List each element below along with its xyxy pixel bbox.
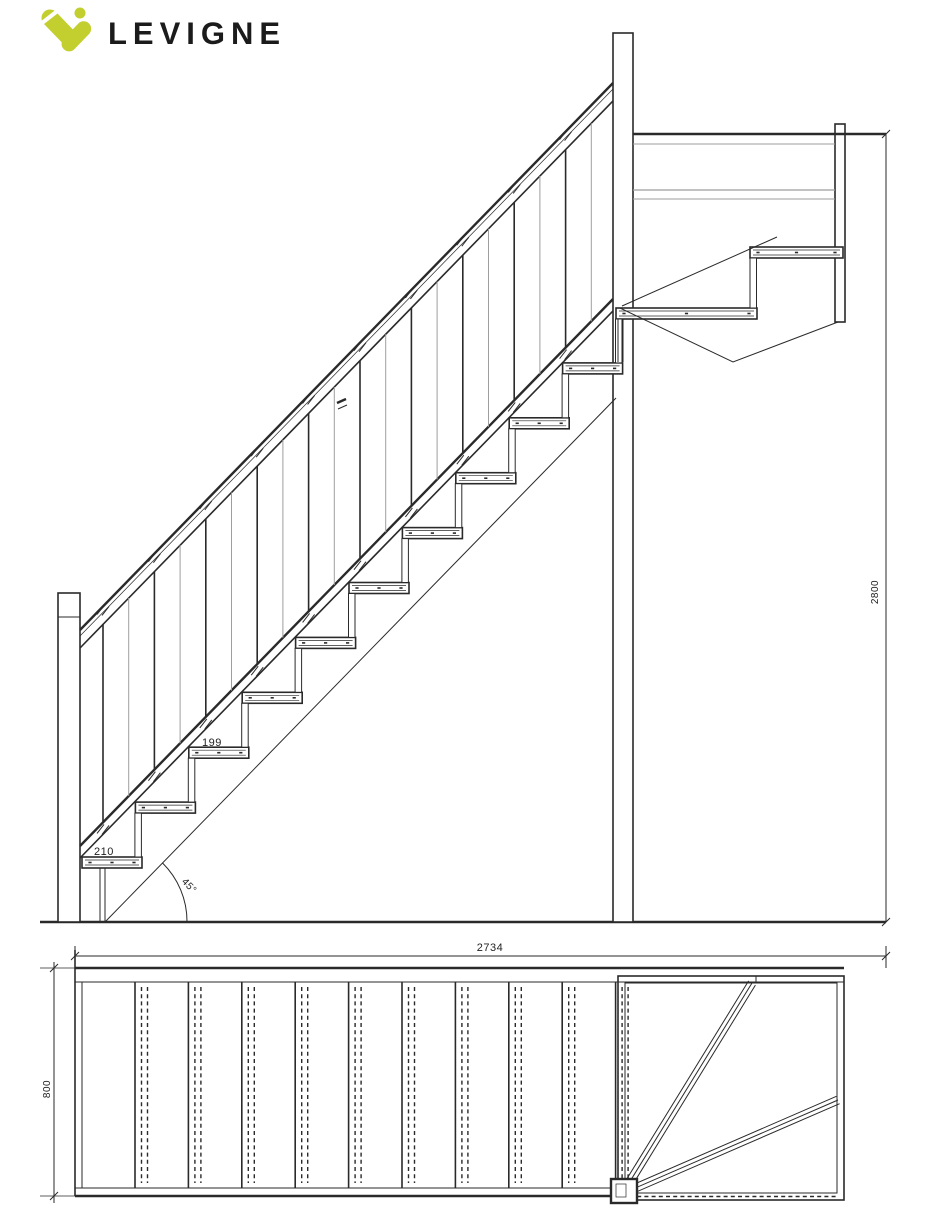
top-newel-post	[613, 33, 633, 922]
plan-view	[40, 946, 890, 1203]
riser	[295, 648, 302, 692]
riser	[135, 813, 142, 857]
angle-arc	[162, 863, 187, 922]
plan-winder-tread	[632, 985, 755, 1185]
riser	[188, 758, 195, 802]
plan-winder-tread	[631, 1096, 836, 1185]
small-annotation-mark	[338, 405, 347, 409]
riser	[349, 594, 356, 638]
riser	[616, 319, 623, 363]
riser	[509, 429, 516, 473]
elevation-view	[40, 33, 890, 926]
shoe-rail-bottom-edge	[80, 311, 613, 858]
dim-stair-width: 800	[42, 1080, 53, 1098]
dim-floor-to-floor: 2800	[870, 580, 881, 604]
handrail-bottom-edge	[80, 101, 613, 648]
plan-landing-inner	[625, 983, 837, 1193]
shoe-rail-top-edge	[80, 299, 613, 846]
dim-tread-going: 210	[94, 846, 114, 858]
dimension-annotations: 210 199 45° 2800 2734 800	[42, 580, 881, 1098]
riser	[750, 258, 757, 308]
dim-riser-height: 199	[202, 737, 222, 749]
handrail-top-edge	[80, 83, 613, 630]
riser	[402, 539, 409, 583]
bottom-newel-post	[58, 593, 80, 922]
drawing-svg: 210 199 45° 2800 2734 800	[0, 0, 940, 1214]
page: { "brand": { "name": "LEVIGNE", "logo_ic…	[0, 0, 940, 1214]
plan-winder-tread	[629, 983, 752, 1183]
upper-landing-post	[835, 124, 845, 322]
riser	[455, 484, 462, 528]
plan-winder-tread	[633, 1100, 838, 1189]
tread-support	[100, 868, 105, 922]
plan-newel-post	[611, 1179, 637, 1203]
small-annotation-mark	[337, 399, 346, 403]
riser	[242, 703, 249, 747]
riser	[562, 374, 569, 418]
staircase-technical-drawing: LEVIGNE 210 199 45° 2800 2734 800	[0, 0, 940, 1214]
dim-total-run: 2734	[477, 942, 503, 954]
